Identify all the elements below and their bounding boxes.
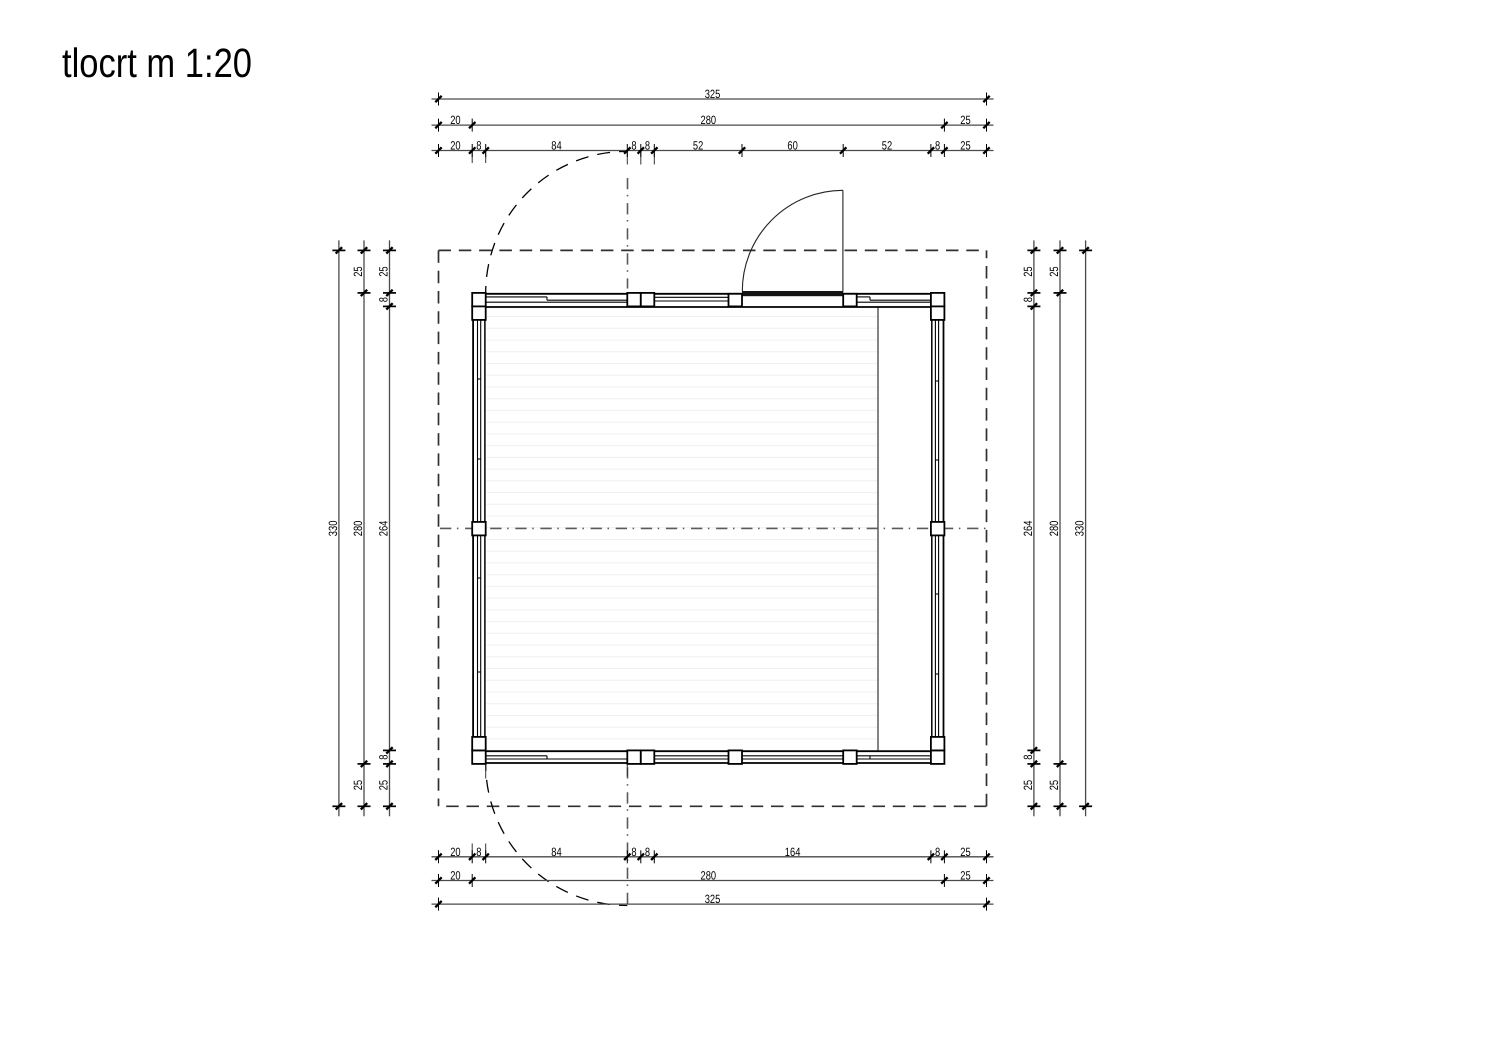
svg-text:52: 52 (882, 139, 893, 153)
svg-text:325: 325 (705, 87, 721, 101)
svg-text:8: 8 (631, 845, 636, 859)
svg-text:330: 330 (326, 520, 340, 536)
svg-text:8: 8 (645, 139, 650, 153)
svg-text:25: 25 (1021, 266, 1035, 277)
svg-text:25: 25 (960, 139, 971, 153)
svg-text:25: 25 (377, 780, 391, 791)
svg-text:280: 280 (351, 520, 365, 536)
svg-text:264: 264 (377, 520, 391, 536)
svg-text:280: 280 (1047, 520, 1061, 536)
svg-text:25: 25 (960, 845, 971, 859)
svg-text:20: 20 (450, 113, 461, 127)
svg-text:8: 8 (476, 845, 481, 859)
svg-text:8: 8 (1021, 297, 1035, 302)
svg-text:25: 25 (1047, 266, 1061, 277)
svg-text:8: 8 (645, 845, 650, 859)
svg-text:280: 280 (701, 869, 717, 883)
svg-text:84: 84 (551, 139, 562, 153)
svg-text:8: 8 (935, 139, 940, 153)
svg-text:164: 164 (785, 845, 801, 859)
svg-text:8: 8 (377, 297, 391, 302)
svg-text:25: 25 (1047, 780, 1061, 791)
svg-text:8: 8 (935, 845, 940, 859)
svg-text:60: 60 (787, 139, 798, 153)
svg-text:25: 25 (960, 869, 971, 883)
svg-text:25: 25 (960, 113, 971, 127)
svg-text:8: 8 (377, 754, 391, 759)
svg-text:330: 330 (1073, 520, 1087, 536)
svg-text:25: 25 (351, 780, 365, 791)
svg-text:25: 25 (351, 266, 365, 277)
svg-text:264: 264 (1021, 520, 1035, 536)
svg-text:8: 8 (1021, 754, 1035, 759)
svg-text:25: 25 (1021, 780, 1035, 791)
svg-text:20: 20 (450, 845, 461, 859)
svg-text:52: 52 (693, 139, 704, 153)
svg-text:8: 8 (476, 139, 481, 153)
svg-text:20: 20 (450, 869, 461, 883)
svg-text:tlocrt m 1:20: tlocrt m 1:20 (62, 40, 252, 86)
svg-text:325: 325 (705, 892, 721, 906)
svg-text:20: 20 (450, 139, 461, 153)
svg-text:8: 8 (631, 139, 636, 153)
svg-text:25: 25 (377, 266, 391, 277)
svg-text:280: 280 (701, 113, 717, 127)
svg-text:84: 84 (551, 845, 562, 859)
